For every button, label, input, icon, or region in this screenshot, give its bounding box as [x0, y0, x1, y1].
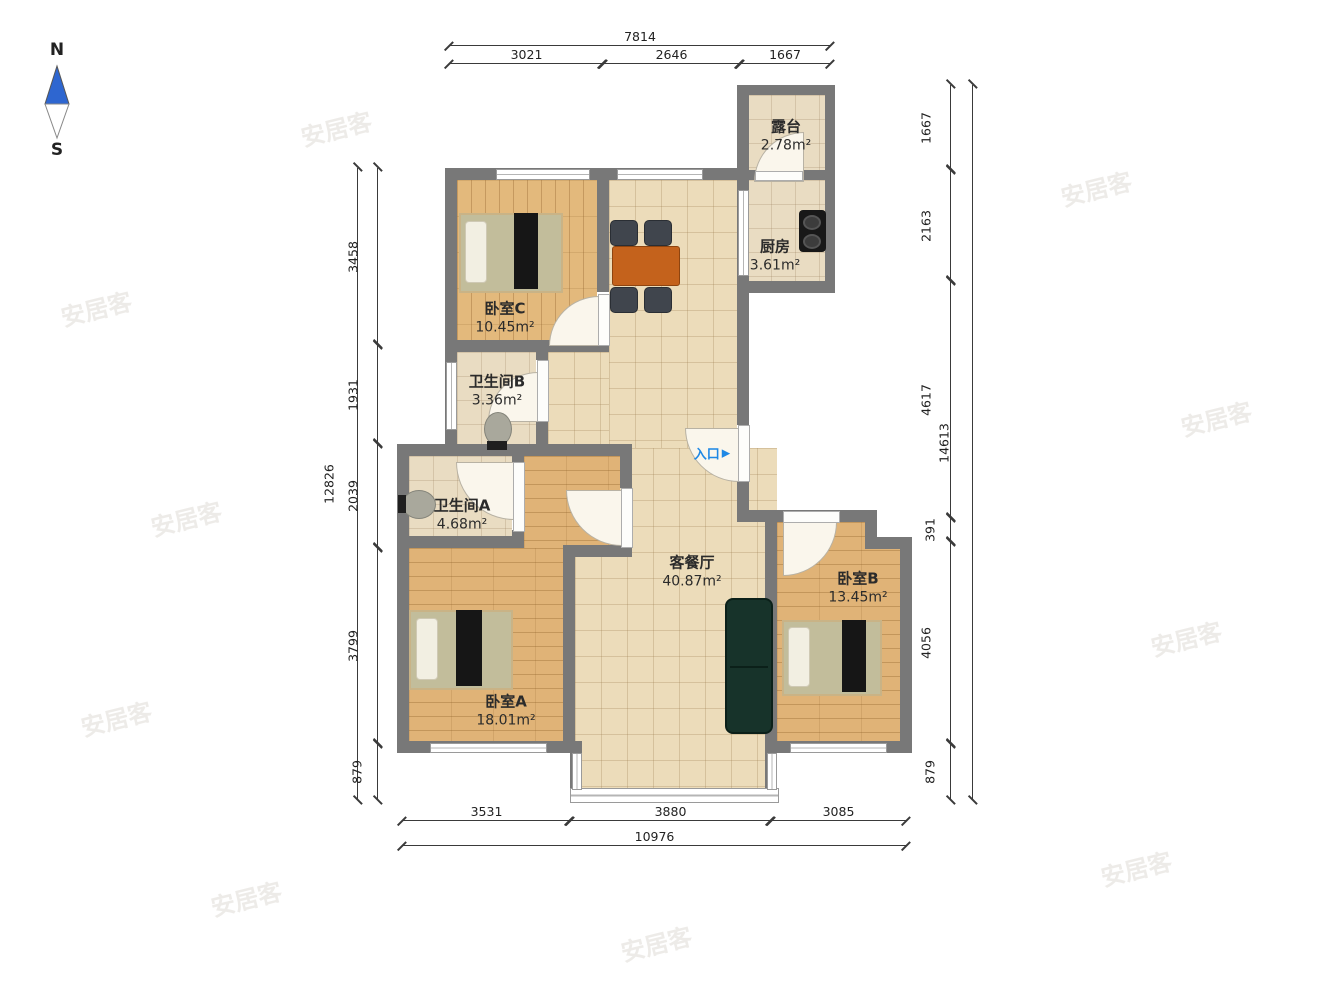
wall — [397, 444, 632, 456]
room-label-bedroom-b: 卧室B 13.45m² — [828, 568, 887, 607]
room-label-bedroom-a: 卧室A 18.01m² — [476, 691, 535, 730]
hallway-floor — [548, 352, 609, 448]
wall — [900, 537, 912, 753]
dim-left-segment: 879 — [377, 744, 378, 800]
dim-right-segment: 4617 — [950, 281, 951, 518]
watermark: 安居客 — [207, 872, 285, 923]
bay-window-side — [767, 753, 777, 790]
watermark: 安居客 — [1147, 612, 1225, 663]
room-label-living: 客餐厅 40.87m² — [662, 552, 721, 591]
dim-bottom-total: 10976 — [403, 845, 906, 846]
room-label-bath-a: 卫生间A 4.68m² — [434, 495, 491, 534]
wall — [737, 281, 835, 293]
blanket-symbol — [456, 610, 482, 686]
toilet-tank-symbol — [398, 495, 406, 513]
watermark: 安居客 — [1177, 392, 1255, 443]
dim-right-segment: 2163 — [950, 170, 951, 281]
watermark: 安居客 — [57, 282, 135, 333]
window — [446, 362, 457, 430]
watermark: 安居客 — [1097, 842, 1175, 893]
room-label-bath-b: 卫生间B 3.36m² — [469, 371, 525, 410]
entrance-door-leaf — [738, 425, 750, 482]
wall — [737, 85, 749, 180]
entrance-arrow-icon: ▶ — [722, 447, 730, 460]
wall — [737, 85, 835, 95]
pillow-symbol — [788, 627, 810, 687]
wall — [536, 340, 548, 360]
watermark: 安居客 — [617, 917, 695, 968]
chair-symbol — [644, 220, 672, 246]
dim-top-segment: 1667 — [740, 63, 830, 64]
wall — [597, 168, 609, 292]
watermark: 安居客 — [147, 492, 225, 543]
dim-bottom-segment: 3880 — [570, 820, 771, 821]
dim-bottom-segment: 3531 — [403, 820, 570, 821]
compass-south-label: S — [37, 140, 77, 160]
window — [617, 169, 703, 180]
dim-right-total: 14613 — [972, 85, 973, 800]
watermark: 安居客 — [77, 692, 155, 743]
compass-arrow-icon — [39, 64, 75, 140]
sofa-symbol — [725, 598, 773, 734]
stove-symbol — [799, 210, 826, 252]
dim-right-segment: 1667 — [950, 85, 951, 170]
toilet-tank-symbol — [487, 441, 507, 450]
dim-left-segment: 2039 — [377, 444, 378, 548]
door-leaf — [513, 462, 525, 532]
bay-window — [570, 788, 779, 803]
door-leaf — [755, 171, 803, 181]
dim-top-total: 7814 — [450, 45, 830, 46]
wall — [563, 545, 575, 753]
watermark: 安居客 — [1057, 162, 1135, 213]
dim-right-segment: 4056 — [950, 542, 951, 744]
chair-symbol — [610, 287, 638, 313]
wall — [737, 293, 749, 425]
door-leaf — [598, 294, 610, 346]
toilet-symbol — [402, 490, 436, 519]
wall — [825, 85, 835, 293]
dim-right-segment: 879 — [950, 744, 951, 800]
room-label-kitchen: 厨房 3.61m² — [750, 236, 800, 275]
dim-bottom-segment: 3085 — [771, 820, 906, 821]
compass-north-label: N — [37, 40, 77, 60]
exterior-patch — [877, 500, 907, 540]
wall — [620, 444, 632, 488]
door-leaf — [621, 488, 633, 548]
dim-left-segment: 3799 — [377, 548, 378, 744]
dim-left-segment: 3458 — [377, 168, 378, 345]
chair-symbol — [610, 220, 638, 246]
window — [790, 743, 887, 753]
door-leaf — [783, 511, 840, 523]
wall — [397, 536, 524, 548]
watermark: 安居客 — [297, 102, 375, 153]
dim-top-segment: 2646 — [603, 63, 740, 64]
wall — [397, 444, 409, 753]
dim-top-segment: 3021 — [450, 63, 603, 64]
floorplan: 安居客 安居客 安居客 安居客 安居客 安居客 安居客 安居客 安居客 安居客 … — [0, 0, 1333, 1000]
door-leaf — [537, 360, 549, 422]
window — [430, 743, 547, 753]
dining-table-symbol — [612, 246, 680, 286]
pillow-symbol — [416, 618, 438, 680]
room-label-terrace: 露台 2.78m² — [761, 116, 811, 155]
dim-left-segment: 1931 — [377, 345, 378, 444]
pillow-symbol — [465, 221, 487, 283]
bay-window-side — [572, 753, 582, 790]
room-label-bedroom-c: 卧室C 10.45m² — [475, 298, 534, 337]
blanket-symbol — [842, 620, 866, 692]
entrance-label: 入口▶ — [694, 444, 730, 463]
blanket-symbol — [514, 213, 538, 289]
window — [496, 169, 590, 180]
kitchen-opening — [738, 190, 749, 276]
chair-symbol — [644, 287, 672, 313]
